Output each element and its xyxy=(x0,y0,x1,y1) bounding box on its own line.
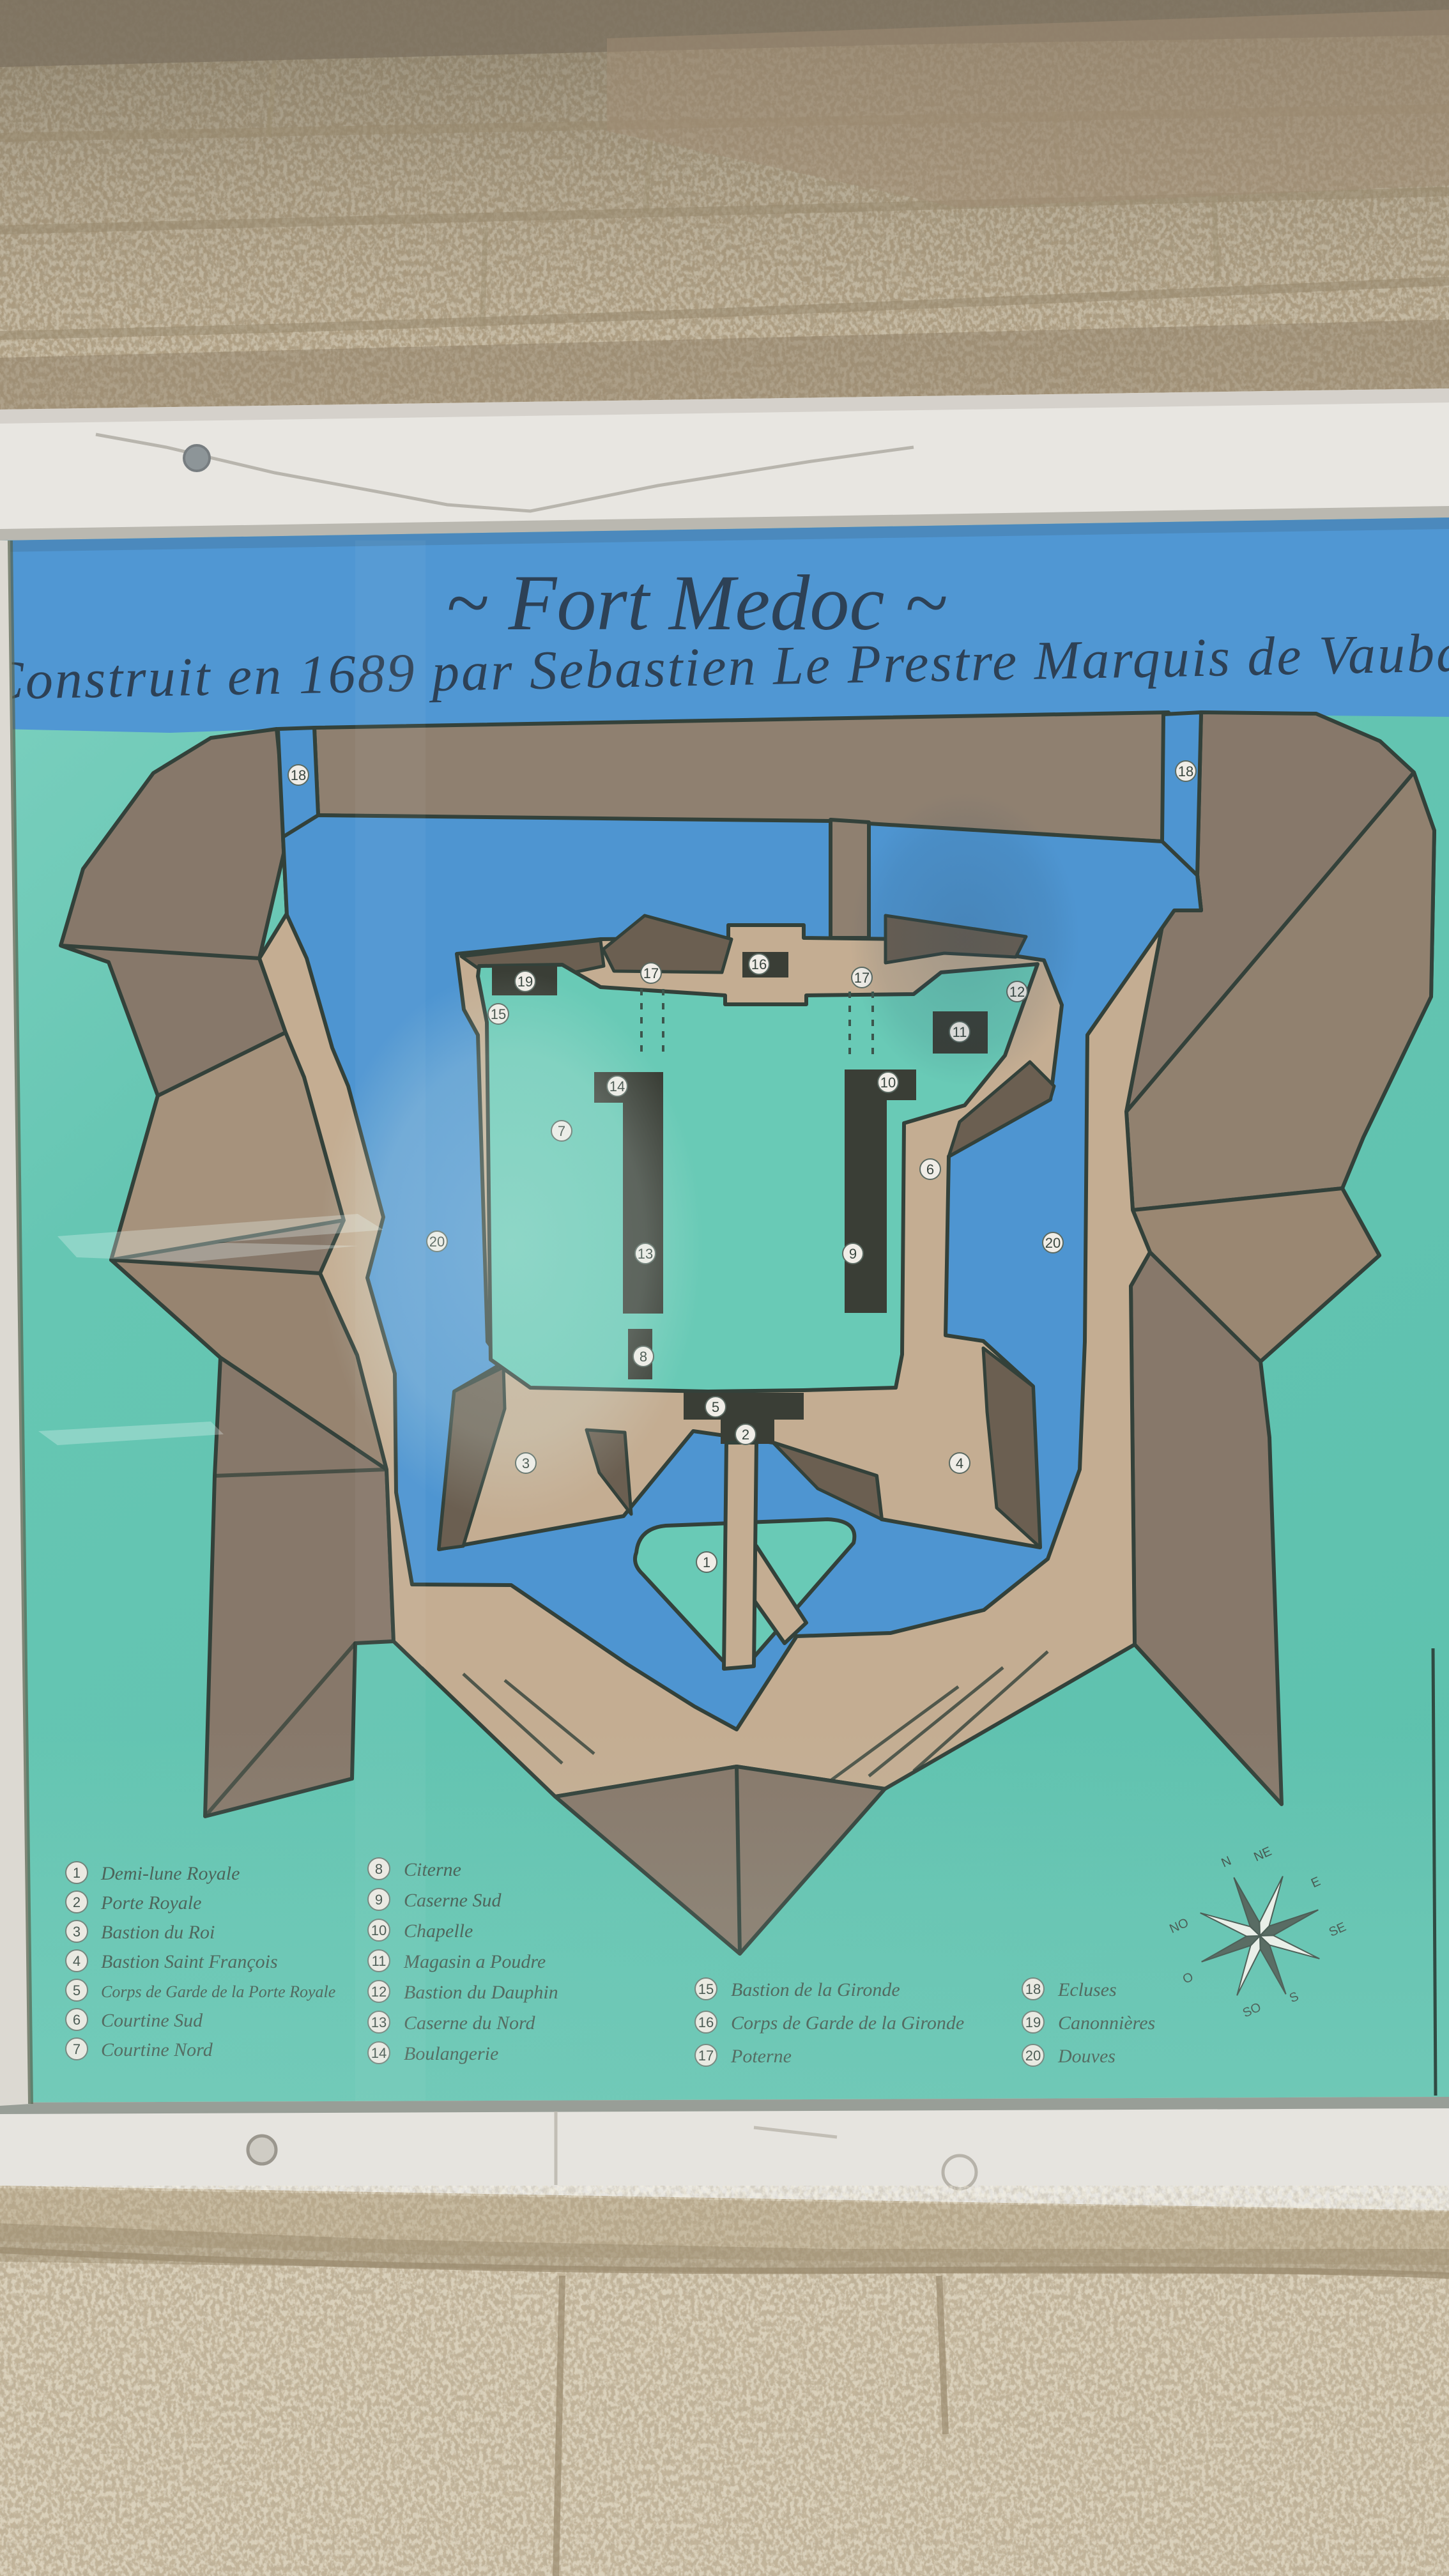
svg-text:17: 17 xyxy=(643,965,659,981)
svg-text:6: 6 xyxy=(926,1161,934,1177)
svg-text:1: 1 xyxy=(703,1554,710,1570)
svg-text:2: 2 xyxy=(742,1427,749,1443)
svg-text:9: 9 xyxy=(849,1246,857,1262)
svg-text:16: 16 xyxy=(751,956,767,972)
svg-text:20: 20 xyxy=(1045,1235,1061,1251)
svg-text:5: 5 xyxy=(712,1399,719,1415)
svg-text:10: 10 xyxy=(880,1075,896,1091)
svg-text:18: 18 xyxy=(1178,763,1193,779)
svg-text:4: 4 xyxy=(956,1455,963,1471)
svg-text:18: 18 xyxy=(291,767,306,783)
